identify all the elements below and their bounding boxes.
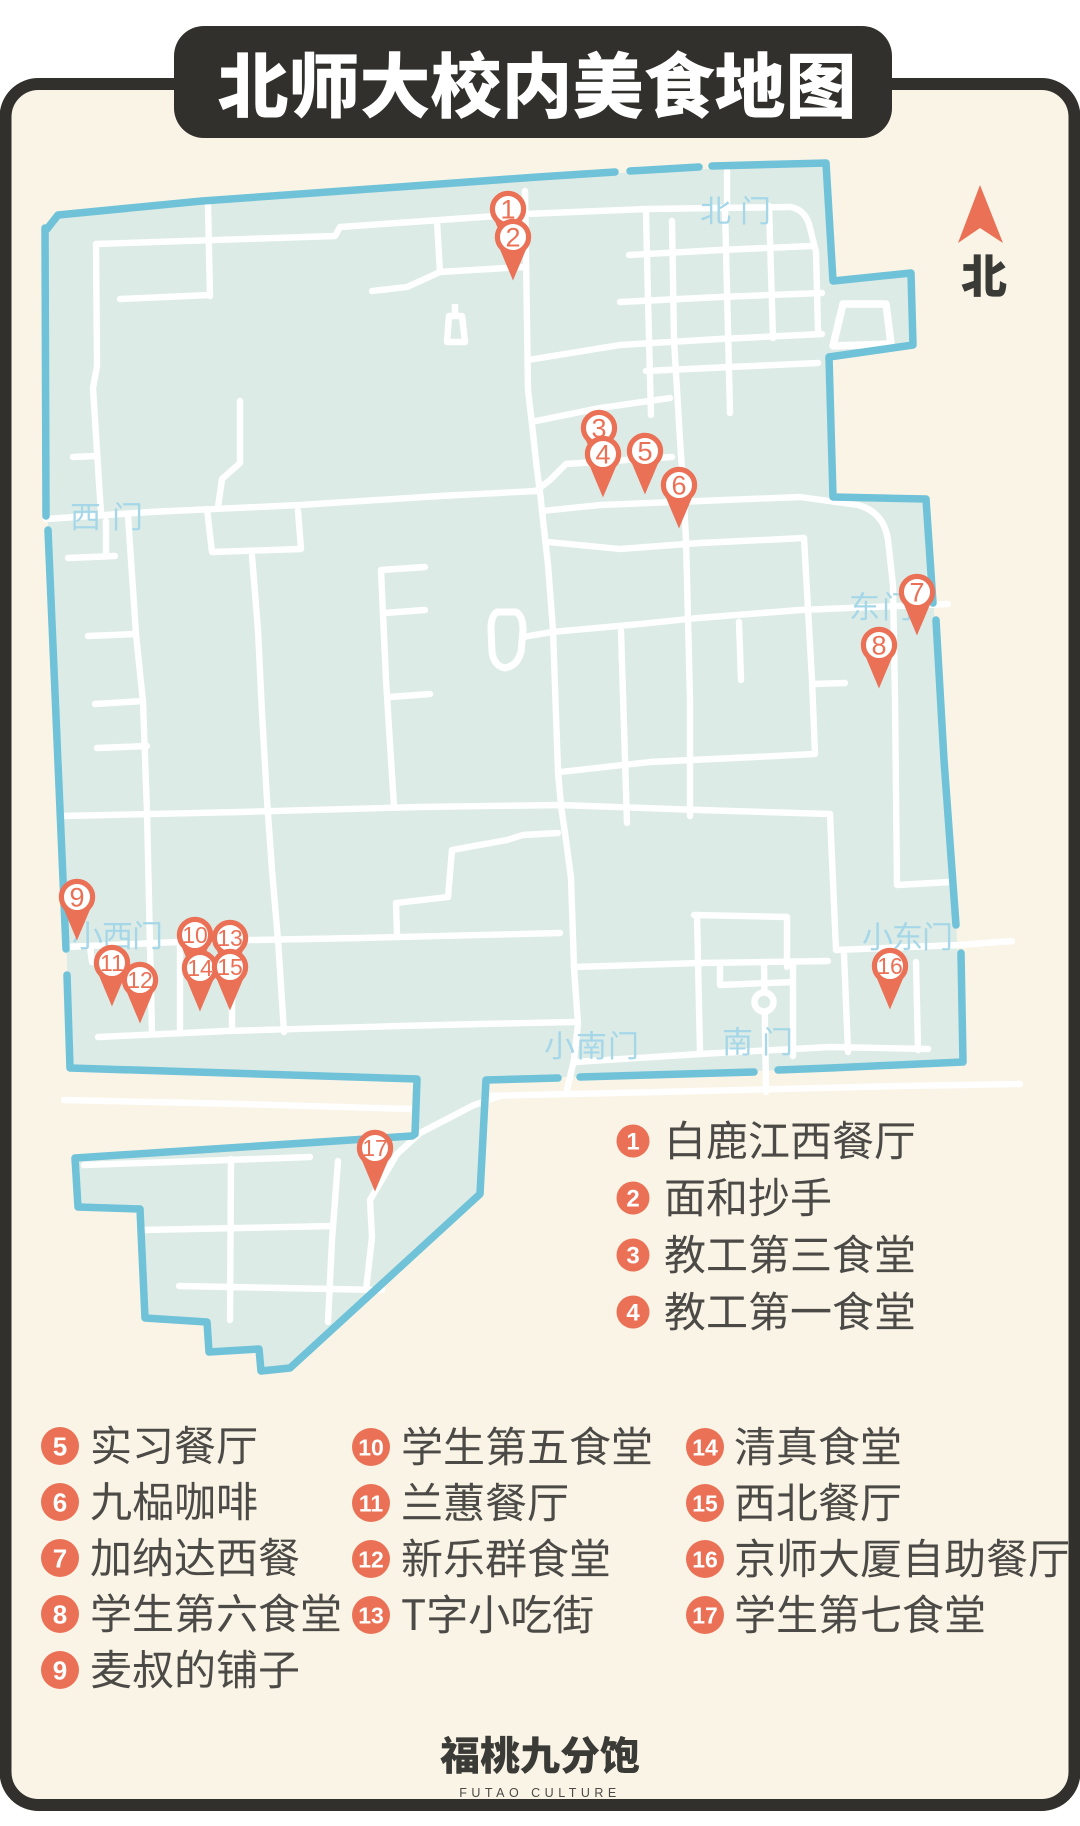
svg-text:3: 3 [626, 1243, 639, 1270]
svg-text:17: 17 [692, 1602, 718, 1628]
svg-text:12: 12 [127, 967, 153, 993]
svg-text:17: 17 [362, 1135, 388, 1161]
svg-text:4: 4 [595, 440, 610, 470]
svg-text:14: 14 [692, 1434, 718, 1460]
svg-text:7: 7 [909, 578, 924, 608]
svg-text:6: 6 [53, 1487, 67, 1517]
svg-text:13: 13 [358, 1602, 384, 1628]
svg-text:9: 9 [53, 1655, 67, 1685]
svg-text:FUTAO CULTURE: FUTAO CULTURE [459, 1786, 621, 1800]
svg-text:10: 10 [182, 922, 208, 948]
svg-text:5: 5 [637, 437, 652, 467]
svg-text:10: 10 [358, 1434, 384, 1460]
svg-text:7: 7 [53, 1543, 67, 1573]
svg-text:8: 8 [53, 1599, 67, 1629]
svg-text:6: 6 [671, 471, 686, 501]
svg-text:9: 9 [69, 883, 84, 913]
svg-text:4: 4 [626, 1300, 640, 1327]
svg-text:14: 14 [187, 955, 213, 981]
svg-text:1: 1 [626, 1129, 639, 1156]
svg-text:8: 8 [871, 631, 886, 661]
svg-text:12: 12 [358, 1546, 384, 1572]
svg-text:13: 13 [217, 925, 243, 951]
svg-text:15: 15 [217, 954, 243, 980]
svg-text:2: 2 [626, 1186, 639, 1213]
svg-text:2: 2 [505, 223, 520, 253]
svg-text:15: 15 [692, 1490, 718, 1516]
svg-text:16: 16 [692, 1546, 718, 1572]
svg-text:5: 5 [53, 1431, 67, 1461]
svg-text:16: 16 [877, 953, 903, 979]
svg-text:11: 11 [359, 1490, 384, 1516]
svg-text:11: 11 [100, 950, 124, 976]
